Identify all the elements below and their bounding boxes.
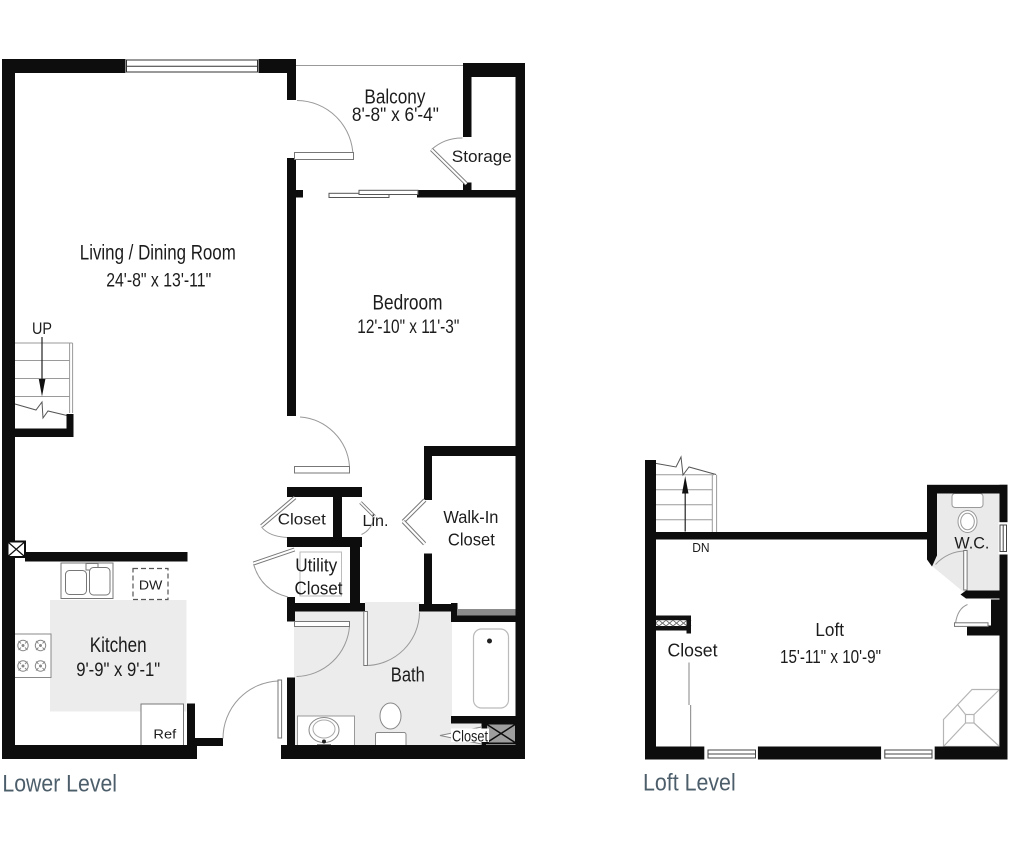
svg-text:Kitchen: Kitchen [90, 634, 147, 657]
svg-text:Closet: Closet [278, 512, 327, 529]
svg-text:Bath: Bath [391, 665, 425, 687]
svg-text:Ref: Ref [153, 727, 176, 742]
svg-text:DN: DN [692, 541, 709, 555]
svg-text:8'-8" x 6'-4": 8'-8" x 6'-4" [352, 105, 439, 126]
svg-text:Loft: Loft [815, 620, 844, 640]
svg-text:Utility: Utility [295, 556, 337, 576]
svg-text:15'-11" x 10'-9": 15'-11" x 10'-9" [780, 647, 881, 667]
svg-text:Closet: Closet [668, 641, 718, 661]
svg-text:9'-9" x 9'-1": 9'-9" x 9'-1" [76, 660, 160, 681]
svg-text:W.C.: W.C. [954, 534, 989, 553]
svg-text:Storage: Storage [452, 147, 512, 166]
svg-text:DW: DW [139, 579, 163, 593]
svg-text:24'-8" x 13'-11": 24'-8" x 13'-11" [106, 271, 211, 292]
svg-text:Lin.: Lin. [363, 513, 389, 530]
svg-text:Closet: Closet [448, 530, 495, 550]
svg-text:Bedroom: Bedroom [373, 292, 443, 315]
svg-text:12'-10" x 11'-3": 12'-10" x 11'-3" [357, 317, 459, 338]
svg-text:Loft Level: Loft Level [643, 770, 736, 797]
svg-text:UP: UP [32, 319, 52, 338]
svg-text:Walk-In: Walk-In [443, 507, 498, 527]
svg-text:Lower Level: Lower Level [2, 771, 117, 798]
svg-text:Closet: Closet [295, 579, 343, 599]
svg-text:Living / Dining Room: Living / Dining Room [80, 242, 236, 265]
svg-text:Closet: Closet [452, 729, 488, 746]
